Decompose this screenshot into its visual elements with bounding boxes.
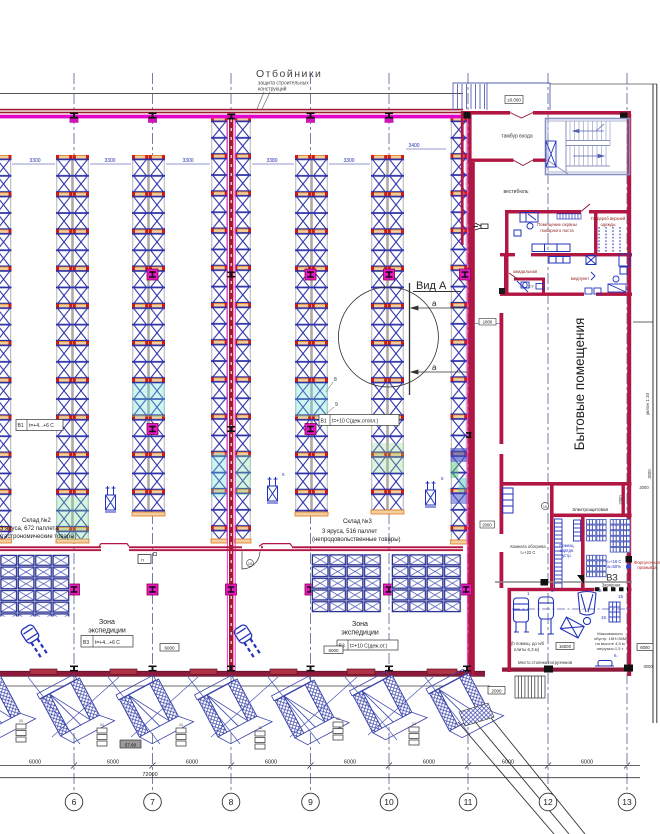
svg-text:10: 10 xyxy=(543,505,547,509)
svg-text:пожарного поста: пожарного поста xyxy=(540,228,574,233)
svg-text:10: 10 xyxy=(384,797,394,807)
svg-text:Гардероб верхней: Гардероб верхней xyxy=(591,216,626,221)
svg-text:3 яруса, 672 паллета: 3 яруса, 672 паллета xyxy=(0,526,59,532)
svg-text:конструкций: конструкций xyxy=(258,86,287,93)
svg-text:7: 7 xyxy=(150,797,155,807)
svg-text:t=+4...+6 С: t=+4...+6 С xyxy=(95,640,120,646)
svg-text:уклон 1:10: уклон 1:10 xyxy=(645,393,650,415)
svg-text:6000: 6000 xyxy=(344,760,356,766)
svg-text:2000: 2000 xyxy=(482,523,492,528)
svg-text:Бытовые помещения: Бытовые помещения xyxy=(572,318,587,451)
svg-text:1800: 1800 xyxy=(483,320,493,325)
svg-text:Комната обогрева: Комната обогрева xyxy=(510,544,546,549)
svg-text:6000: 6000 xyxy=(186,760,198,766)
svg-text:16000: 16000 xyxy=(559,644,572,649)
svg-text:промывка: промывка xyxy=(637,565,657,570)
svg-text:Зона: Зона xyxy=(99,619,115,626)
svg-text:3300: 3300 xyxy=(29,158,40,164)
svg-text:В3: В3 xyxy=(83,640,89,646)
svg-text:6000: 6000 xyxy=(502,760,514,766)
svg-text:3000: 3000 xyxy=(647,469,652,479)
svg-text:2000: 2000 xyxy=(639,485,649,490)
svg-text:6.: 6. xyxy=(614,653,618,658)
svg-text:одежды: одежды xyxy=(601,222,616,227)
svg-text:10: 10 xyxy=(248,562,252,566)
svg-text:а: а xyxy=(432,299,437,308)
svg-text:Склад №2: Склад №2 xyxy=(22,517,51,524)
svg-text:6000: 6000 xyxy=(423,760,435,766)
svg-text:3380: 3380 xyxy=(266,158,277,164)
svg-text:t=+22 С: t=+22 С xyxy=(521,550,536,555)
svg-text:3400: 3400 xyxy=(408,143,419,149)
svg-text:медпункт: медпункт xyxy=(571,276,590,281)
svg-text:±0.000: ±0.000 xyxy=(507,98,521,103)
svg-text:57.60: 57.60 xyxy=(125,743,137,748)
svg-text:3000: 3000 xyxy=(643,664,653,669)
svg-text:6000: 6000 xyxy=(640,645,650,650)
svg-text:3300: 3300 xyxy=(182,158,193,164)
svg-text:t=+4...+6 С: t=+4...+6 С xyxy=(29,423,54,429)
svg-text:Место стоянки погрузчиков: Место стоянки погрузчиков xyxy=(518,660,573,665)
svg-text:экспедиции: экспедиции xyxy=(88,628,126,635)
svg-text:устр.: устр. xyxy=(562,553,572,558)
svg-text:П: П xyxy=(141,558,144,563)
svg-text:3300: 3300 xyxy=(104,158,115,164)
svg-text:(непродовольственные товары): (непродовольственные товары) xyxy=(312,537,401,543)
svg-text:1: 1 xyxy=(527,591,530,596)
svg-text:6000: 6000 xyxy=(29,760,41,766)
svg-text:6000: 6000 xyxy=(265,760,277,766)
svg-text:(h помещ. до н/б: (h помещ. до н/б xyxy=(511,641,545,646)
svg-text:11: 11 xyxy=(464,797,473,807)
svg-text:Вид А: Вид А xyxy=(416,280,447,292)
svg-text:12: 12 xyxy=(543,797,553,807)
svg-text:6000: 6000 xyxy=(164,646,175,651)
svg-text:нагрузка=1,5 т: нагрузка=1,5 т xyxy=(597,646,624,651)
svg-text:2: 2 xyxy=(599,588,602,593)
svg-text:тамбур входа: тамбур входа xyxy=(501,134,532,140)
svg-text:Электрощитовая: Электрощитовая xyxy=(572,507,609,512)
svg-text:15: 15 xyxy=(618,594,624,599)
svg-text:3 яруса, 516 паллет: 3 яруса, 516 паллет xyxy=(322,529,378,535)
svg-text:6000: 6000 xyxy=(581,760,593,766)
svg-text:2300: 2300 xyxy=(618,495,623,505)
svg-text:экспедиции: экспедиции xyxy=(341,630,379,637)
svg-text:Помещение охраны: Помещение охраны xyxy=(537,222,577,227)
svg-text:w=50%: w=50% xyxy=(607,564,621,569)
svg-text:плиты 6,3 м): плиты 6,3 м) xyxy=(514,647,540,652)
svg-text:Склад №3: Склад №3 xyxy=(343,518,372,525)
svg-text:В1: В1 xyxy=(321,419,327,425)
svg-text:ожидальная: ожидальная xyxy=(513,269,538,274)
svg-text:72000: 72000 xyxy=(142,772,157,778)
svg-text:а: а xyxy=(432,363,437,372)
svg-text:t=+10 С(деж.от.): t=+10 С(деж.от.) xyxy=(350,644,388,650)
svg-text:6: 6 xyxy=(72,797,77,807)
svg-text:(гастрономические товары): (гастрономические товары) xyxy=(0,534,77,540)
svg-text:Зона: Зона xyxy=(352,621,368,628)
svg-text:13: 13 xyxy=(622,797,632,807)
svg-text:2000: 2000 xyxy=(491,689,502,694)
svg-text:8: 8 xyxy=(334,377,337,383)
svg-text:3300: 3300 xyxy=(343,158,354,164)
svg-text:16: 16 xyxy=(601,615,607,620)
svg-text:СУ: СУ xyxy=(529,285,534,289)
svg-text:В1: В1 xyxy=(18,423,24,429)
svg-text:Зарядная: Зарядная xyxy=(602,583,621,588)
svg-text:9: 9 xyxy=(335,402,338,408)
svg-text:9: 9 xyxy=(308,797,313,807)
svg-text:Отбойники: Отбойники xyxy=(256,68,322,80)
svg-text:6000: 6000 xyxy=(328,648,339,653)
svg-text:t=+10 С(деж.отопл.): t=+10 С(деж.отопл.) xyxy=(332,419,379,425)
svg-text:вестибюль: вестибюль xyxy=(504,189,529,195)
svg-text:8: 8 xyxy=(229,797,234,807)
svg-text:6000: 6000 xyxy=(107,760,119,766)
svg-text:3: 3 xyxy=(551,588,554,593)
